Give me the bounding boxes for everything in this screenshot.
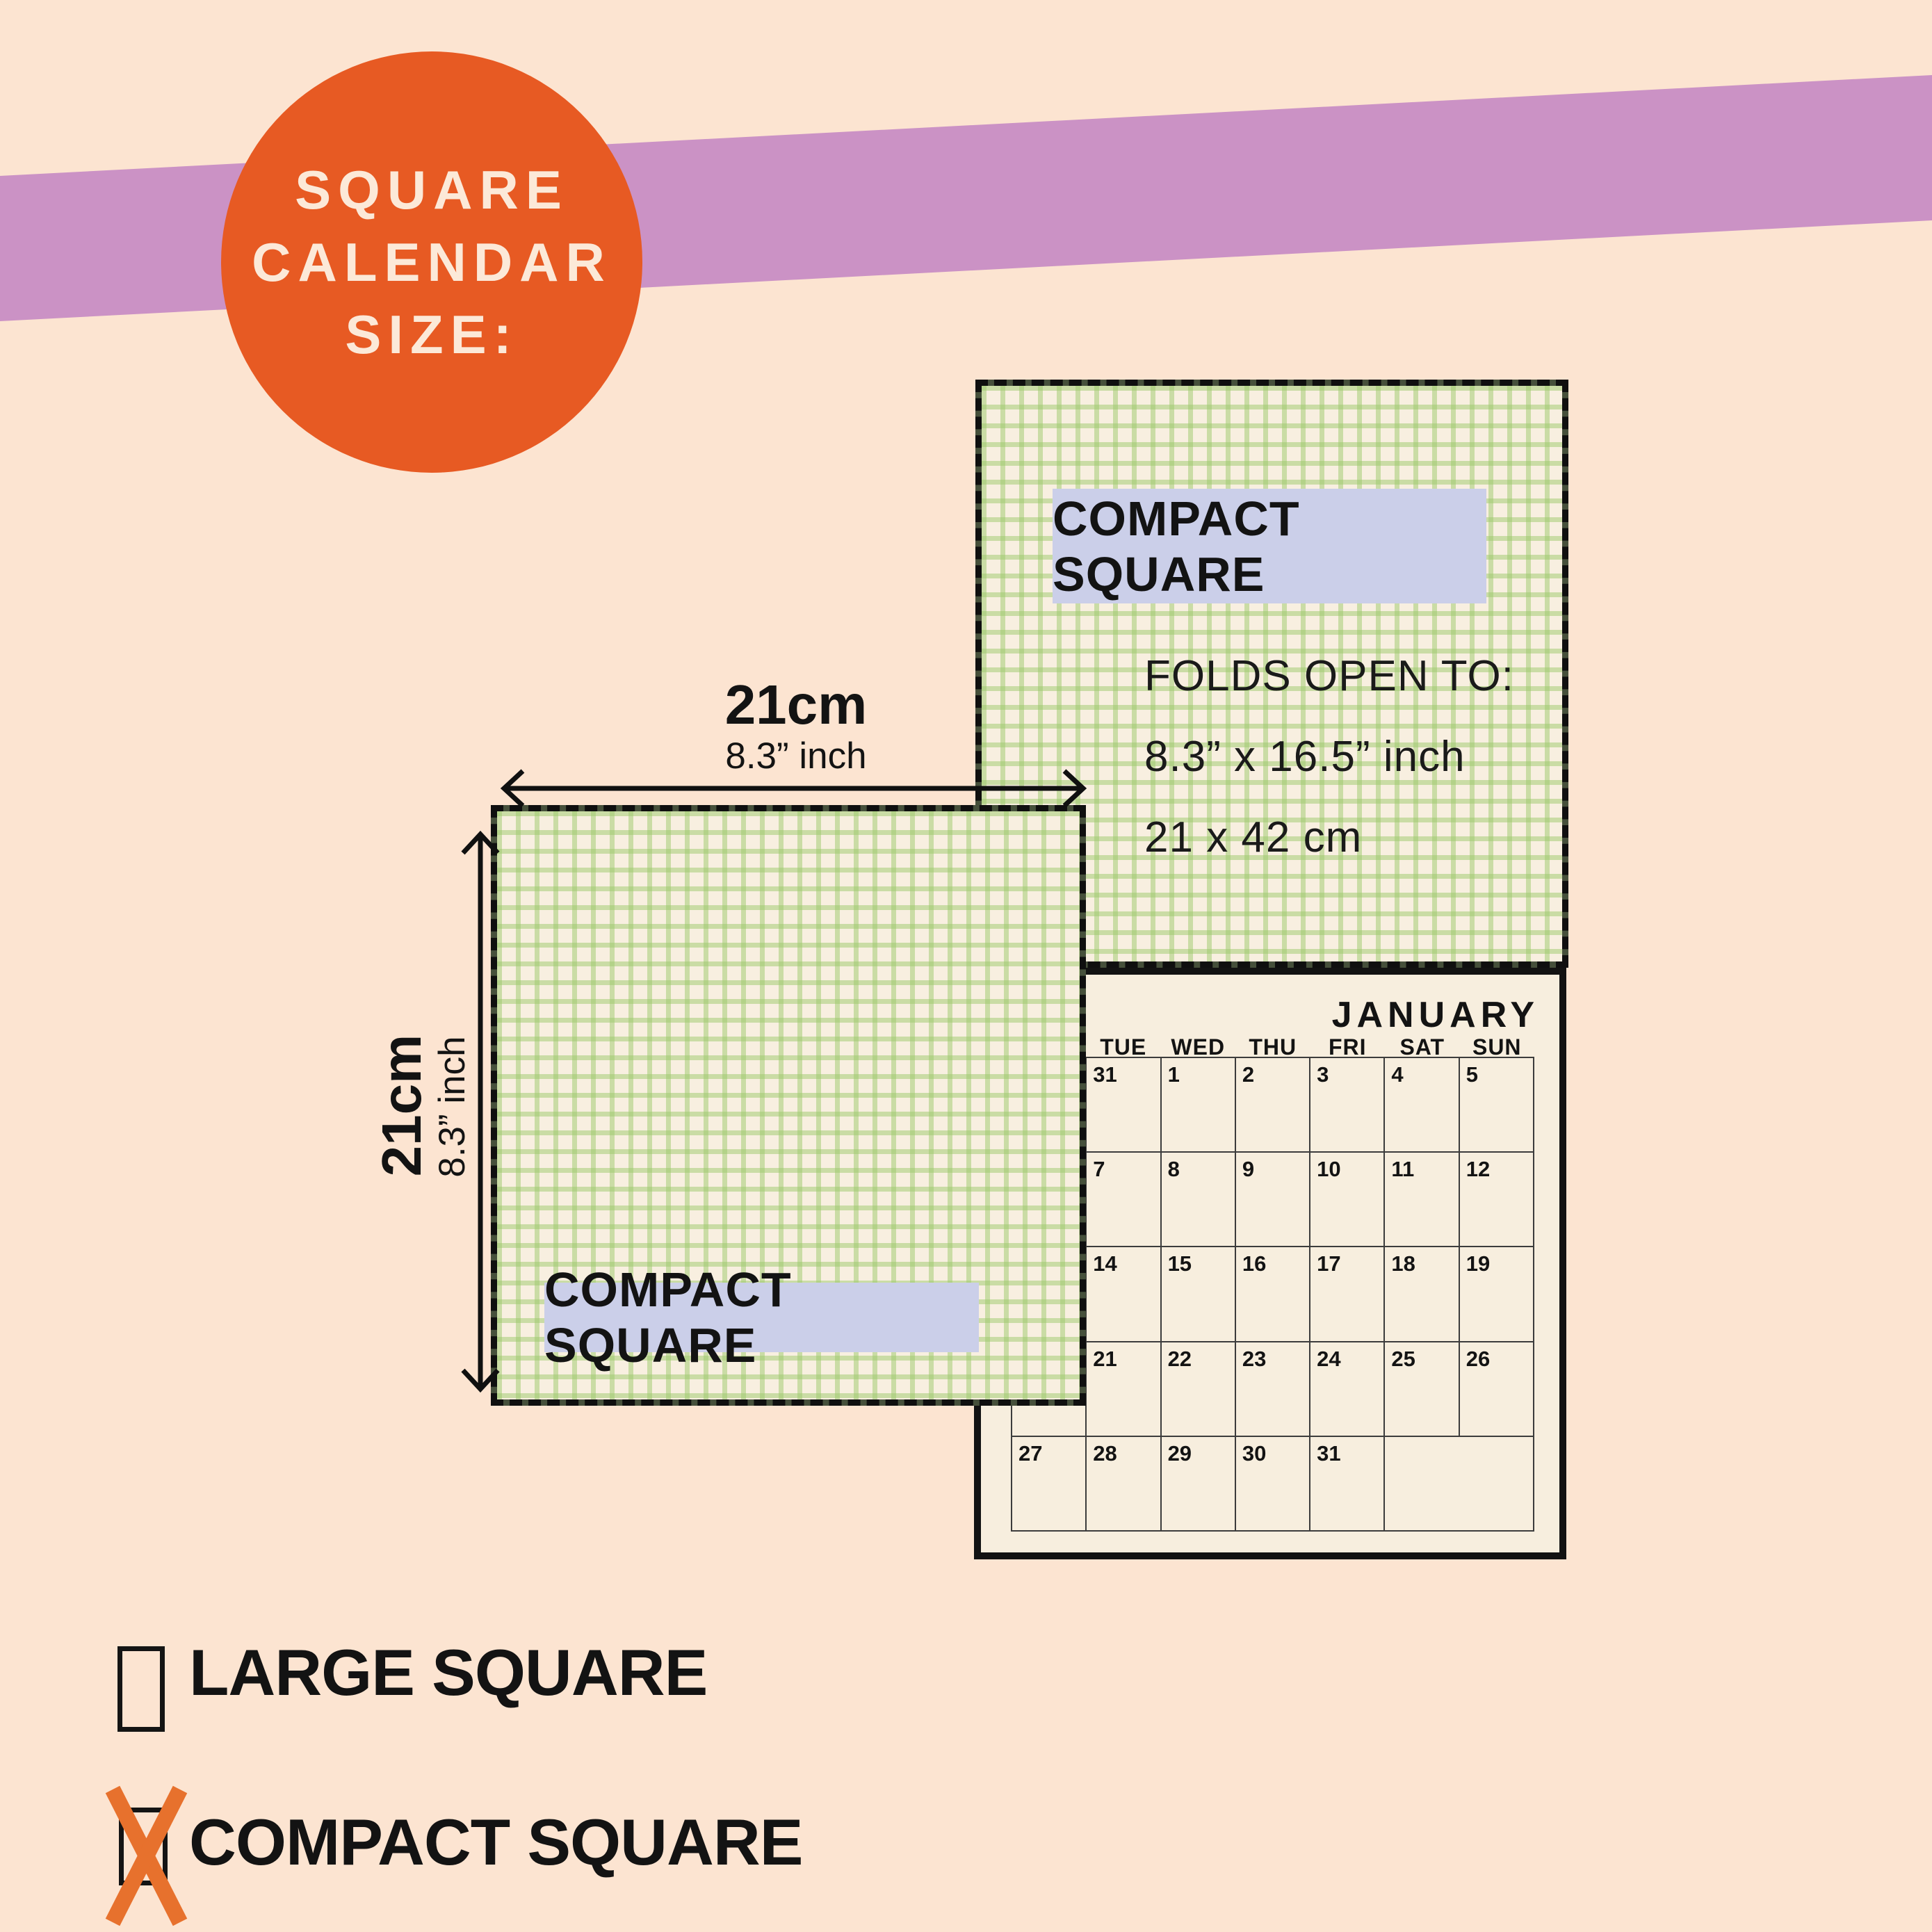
- date-cell: 7: [1086, 1152, 1160, 1247]
- date-cell: [1384, 1436, 1534, 1531]
- option-label: LARGE SQUARE: [189, 1638, 707, 1707]
- back-cover-label: COMPACT SQUARE: [1053, 489, 1486, 603]
- date-cell: 26: [1459, 1342, 1534, 1436]
- date-cell: 4: [1384, 1057, 1459, 1152]
- date-cell: 30: [1235, 1436, 1310, 1531]
- calendar-grid: 3112345789101112141516171819212223242526…: [1011, 1057, 1534, 1532]
- front-cover-page: COMPACT SQUARE: [491, 805, 1086, 1406]
- date-cell: 25: [1384, 1342, 1459, 1436]
- date-cell: 12: [1459, 1152, 1534, 1247]
- width-label-cm: 21cm: [657, 676, 935, 734]
- date-cell: 31: [1086, 1057, 1160, 1152]
- infographic-canvas: SQUARE CALENDAR SIZE: COMPACT SQUARE FOL…: [0, 0, 1932, 1932]
- date-cell: 16: [1235, 1247, 1310, 1341]
- badge-line: SIZE:: [345, 298, 518, 371]
- date-cell: 1: [1161, 1057, 1235, 1152]
- date-cell: 31: [1310, 1436, 1384, 1531]
- date-cell: 29: [1161, 1436, 1235, 1531]
- date-cell: 27: [1012, 1436, 1086, 1531]
- height-label-cm: 21cm: [371, 966, 433, 1244]
- date-cell: 24: [1310, 1342, 1384, 1436]
- badge-line: CALENDAR: [252, 226, 612, 298]
- date-cell: 19: [1459, 1247, 1534, 1341]
- option-label: COMPACT SQUARE: [189, 1808, 803, 1877]
- front-cover-label: COMPACT SQUARE: [544, 1283, 979, 1352]
- date-cell: 21: [1086, 1342, 1160, 1436]
- date-cell: 11: [1384, 1152, 1459, 1247]
- check-x-icon: [103, 1781, 190, 1931]
- height-label-inch: 8.3” inch: [431, 968, 473, 1246]
- date-cell: 14: [1086, 1247, 1160, 1341]
- date-cell: 22: [1161, 1342, 1235, 1436]
- width-label-inch: 8.3” inch: [657, 736, 935, 776]
- folds-open-info: FOLDS OPEN TO: 8.3” x 16.5” inch 21 x 42…: [1144, 636, 1514, 878]
- month-title: JANUARY: [1332, 994, 1539, 1036]
- folds-line: 21 x 42 cm: [1144, 797, 1514, 878]
- folds-line: FOLDS OPEN TO:: [1144, 636, 1514, 717]
- badge-line: SQUARE: [295, 154, 569, 226]
- date-cell: 28: [1086, 1436, 1160, 1531]
- date-cell: 8: [1161, 1152, 1235, 1247]
- date-cell: 9: [1235, 1152, 1310, 1247]
- date-cell: 5: [1459, 1057, 1534, 1152]
- back-cover-label-text: COMPACT SQUARE: [1053, 491, 1486, 602]
- checkbox-large-square: [117, 1646, 165, 1732]
- date-cell: 17: [1310, 1247, 1384, 1341]
- date-cell: 2: [1235, 1057, 1310, 1152]
- date-cell: 3: [1310, 1057, 1384, 1152]
- front-cover-label-text: COMPACT SQUARE: [544, 1262, 979, 1373]
- day-header-row: TUE WED THU FRI SAT SUN: [1086, 1034, 1534, 1057]
- size-badge: SQUARE CALENDAR SIZE:: [221, 51, 642, 473]
- date-cell: 15: [1161, 1247, 1235, 1341]
- date-cell: 10: [1310, 1152, 1384, 1247]
- folds-line: 8.3” x 16.5” inch: [1144, 717, 1514, 797]
- date-cell: 23: [1235, 1342, 1310, 1436]
- date-cell: 18: [1384, 1247, 1459, 1341]
